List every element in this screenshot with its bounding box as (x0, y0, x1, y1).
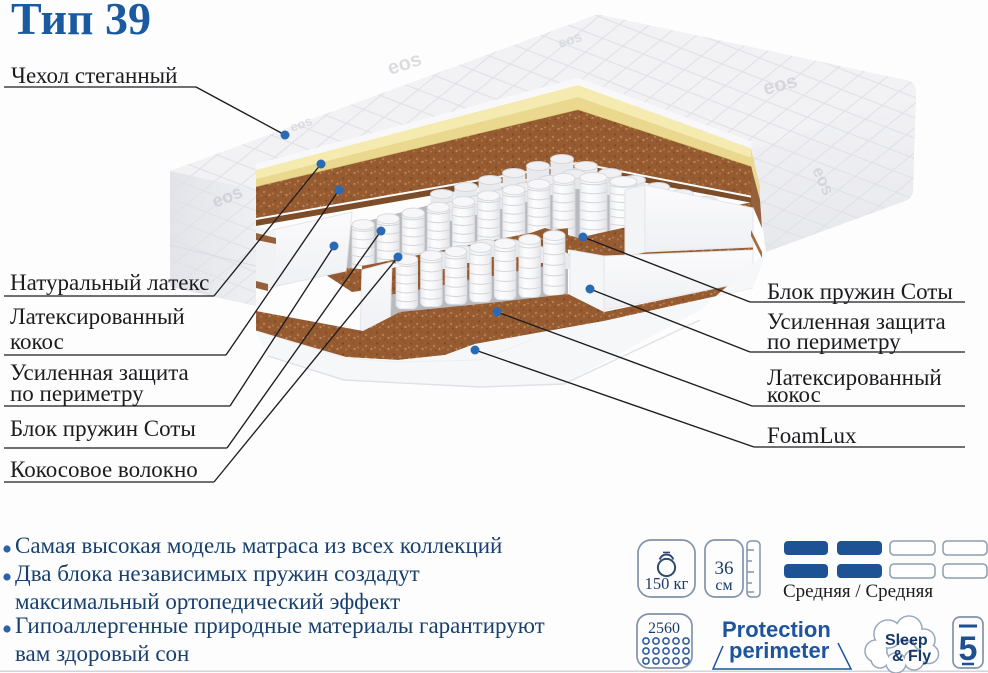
svg-text:eos: eos (385, 48, 425, 80)
